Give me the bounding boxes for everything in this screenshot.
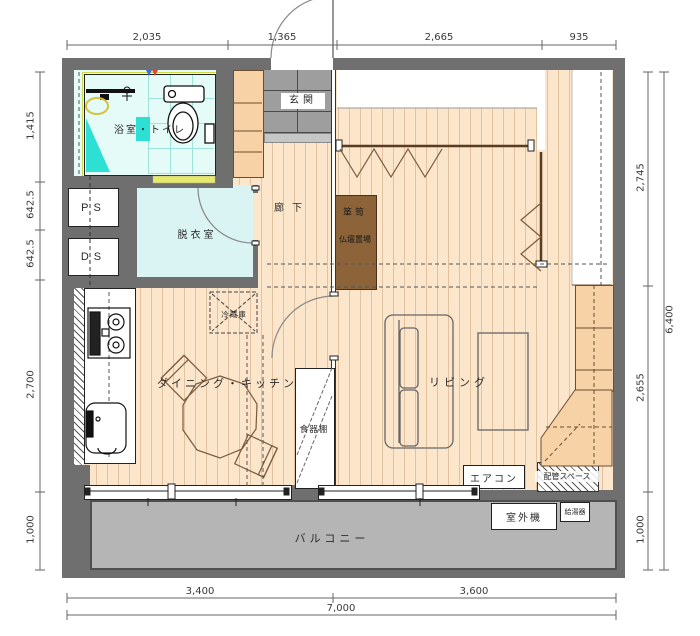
wall-bath-right [216,70,233,188]
tansu-label: 箪笥 [337,205,373,218]
ps-shaft: PS [68,188,119,227]
bathroom-label: 浴室・トイレ [102,121,198,136]
cupboard-label: 食器棚 [294,423,334,435]
entrance-step [264,133,335,143]
wall-dressing-right-a [253,185,258,193]
dim-left-4: 2,700 [26,355,37,415]
dim-left-5: 1,000 [26,500,37,560]
piping-space-label: 配管スペース [535,471,599,482]
wall-dressing-right-b [253,240,258,277]
kitchen-wall-hatch [74,288,84,465]
dim-top-3: 2,665 [409,32,469,43]
water-heater-box: 給湯器 [560,502,590,522]
wall-left-lower [62,465,90,578]
dressing-room-label: 脱衣室 [167,226,227,241]
dim-bottom-1: 3,400 [170,586,230,597]
dining-kitchen-label: ダイニング・キッチン [147,375,307,391]
dim-right-1: 2,745 [636,148,647,208]
outdoor-unit-label: 室外機 [506,509,542,524]
right-cabinet-upper [575,285,614,392]
balcony-label: バルコニー [272,530,392,546]
window-band-left [84,485,292,500]
dim-left-1: 1,415 [26,96,37,156]
refrigerator-label: 冷蔵庫 [214,309,254,320]
dim-top-2: 1,365 [252,32,312,43]
closet-band [337,70,537,108]
dim-top-1: 2,035 [117,32,177,43]
wall-top-right [333,58,625,70]
right-bay-strip [572,70,612,285]
floor-plan: PS DS エアコン 室外機 給湯器 [0,0,700,636]
living-label: リビング [429,374,489,390]
kitchen-counter [84,288,136,464]
butsudan-label: 仏壇置場 [332,234,378,245]
window-band-right [318,485,480,500]
ps-label: PS [81,202,106,214]
dim-bottom-2: 3,600 [444,586,504,597]
ds-label: DS [81,251,106,263]
water-heater-label: 給湯器 [565,507,586,517]
dim-top-4: 935 [549,32,609,43]
dim-left-3: 642.5 [26,224,37,284]
dim-right-total: 6,400 [665,290,676,350]
wall-top-left [62,58,271,70]
front-door [271,0,333,58]
corridor-label: 廊下 [262,199,322,214]
outdoor-unit-box: 室外機 [491,503,557,530]
shoe-cabinet [233,70,264,178]
entrance-label: 玄関 [281,93,325,109]
dim-right-2: 2,655 [636,358,647,418]
wall-dressing-bottom [137,277,258,288]
aircon-label: エアコン [470,470,518,485]
ds-shaft: DS [68,238,119,276]
dim-right-3: 1,000 [636,500,647,560]
closet-strip [537,70,545,150]
dim-bottom-total: 7,000 [311,603,371,614]
